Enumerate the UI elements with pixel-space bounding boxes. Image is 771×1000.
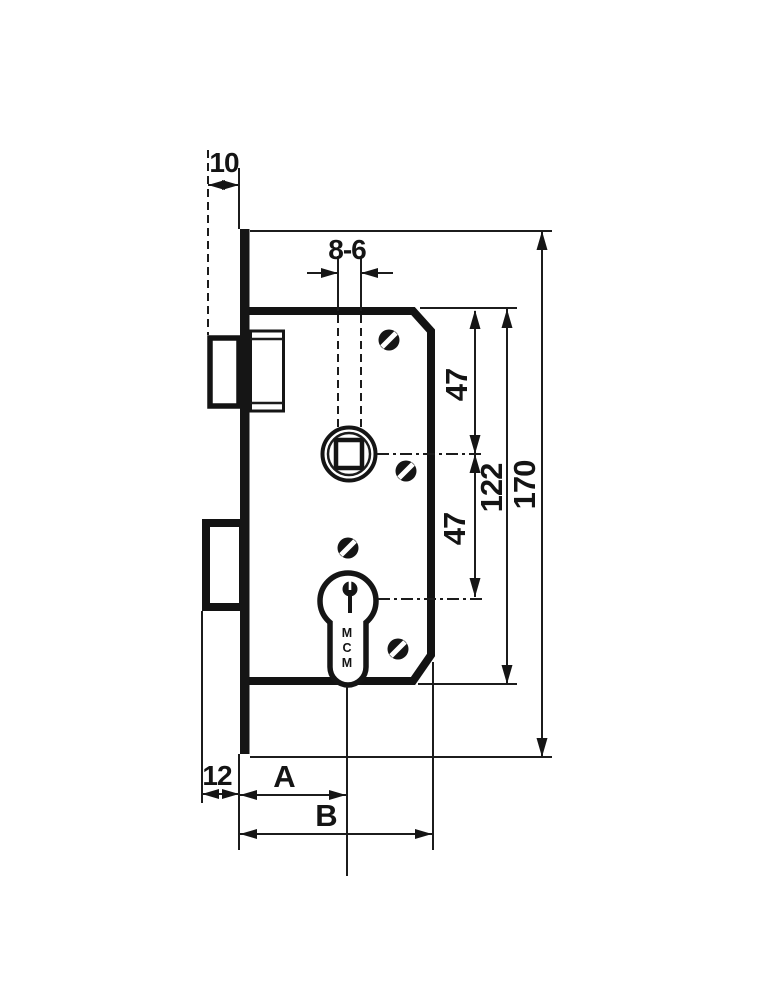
arrowhead [470, 578, 481, 597]
dim-label: 122 [474, 464, 509, 513]
arrowhead [240, 829, 257, 839]
cylinder-brand-letter: M [342, 626, 352, 640]
dim-label: 170 [507, 461, 542, 510]
screw-icon [388, 639, 409, 660]
cylinder-brand-letter: M [342, 656, 352, 670]
arrowhead [470, 310, 481, 329]
arrowhead [502, 665, 513, 684]
latchbolt-head [210, 338, 239, 406]
dim-label: B [315, 798, 336, 833]
arrowhead [537, 231, 548, 250]
arrowhead [502, 309, 513, 328]
dim-backset: A [239, 759, 347, 800]
arrowhead [222, 180, 239, 190]
deadbolt [206, 523, 243, 607]
dim-label: 47 [437, 513, 472, 545]
arrowhead [470, 435, 481, 454]
dim-deadbolt-projection: 12 [202, 760, 239, 799]
dim-label: 47 [439, 369, 474, 401]
dim-follower-square: 8-6 [307, 234, 393, 278]
arrowhead [240, 790, 257, 800]
latchbolt-body [251, 331, 284, 411]
dim-faceplate-length: 170 [507, 231, 548, 757]
follower-hub [323, 428, 376, 481]
cylinder-brand-letter: C [342, 641, 351, 655]
screw-icon [379, 330, 400, 351]
deadbolt-head [206, 523, 243, 607]
scanned-technical-drawing-page: M C M 10 [0, 0, 771, 1000]
faceplate [240, 229, 250, 754]
euro-cylinder: M C M [320, 573, 376, 685]
screw-icon [396, 461, 417, 482]
arrowhead [537, 738, 548, 757]
dim-top-to-follower: 47 [439, 310, 481, 454]
dim-label: 10 [209, 147, 239, 178]
arrowhead [415, 829, 432, 839]
dim-latch-projection: 10 [208, 147, 239, 190]
dim-label: A [273, 759, 295, 794]
screw-icon [338, 538, 359, 559]
arrowhead [321, 268, 338, 278]
arrowhead [361, 268, 378, 278]
spindle-square-hole [336, 440, 362, 468]
mortise-lock-dimension-diagram: M C M 10 [0, 0, 771, 1000]
dim-overall-depth: B [239, 798, 433, 839]
dim-label: 12 [202, 760, 232, 791]
dim-label: 8-6 [328, 234, 366, 265]
